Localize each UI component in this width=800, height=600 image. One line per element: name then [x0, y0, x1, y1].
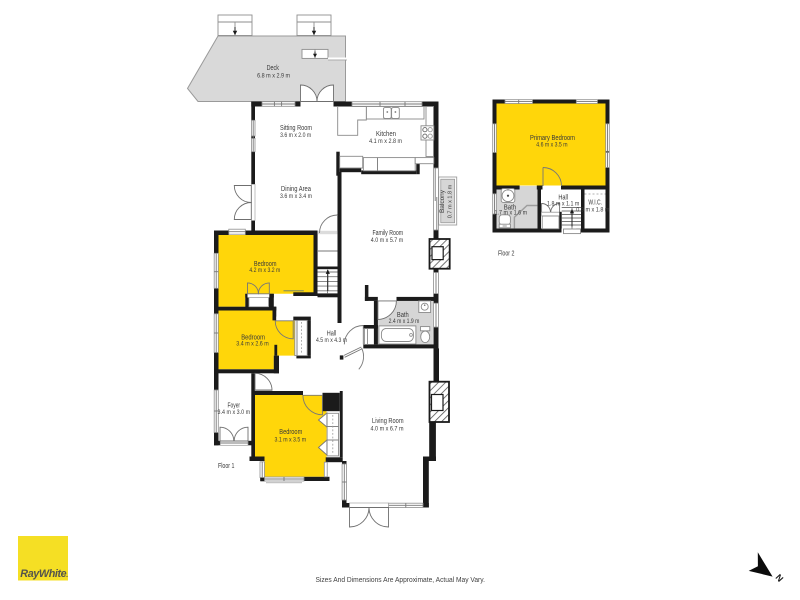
- svg-text:6.8 m x 2.9 m: 6.8 m x 2.9 m: [257, 72, 290, 79]
- svg-text:4.1 m x 2.8 m: 4.1 m x 2.8 m: [369, 138, 402, 145]
- svg-text:4.6 m x 3.5 m: 4.6 m x 3.5 m: [536, 141, 567, 148]
- svg-text:3.6 m x 3.4 m: 3.6 m x 3.4 m: [280, 193, 312, 200]
- svg-text:0.9 m x 1.8 m: 0.9 m x 1.8 m: [576, 206, 609, 213]
- svg-text:RayWhite.: RayWhite.: [20, 568, 68, 580]
- svg-text:4.0 m x 5.7 m: 4.0 m x 5.7 m: [371, 237, 403, 244]
- svg-text:Balcony: Balcony: [439, 189, 446, 213]
- svg-text:4.2 m x 3.2 m: 4.2 m x 3.2 m: [249, 267, 280, 274]
- svg-text:1.7 m x 1.6 m: 1.7 m x 1.6 m: [495, 210, 528, 217]
- svg-text:Floor 2: Floor 2: [498, 249, 515, 258]
- svg-text:Kitchen: Kitchen: [376, 131, 396, 138]
- svg-text:Sitting Room: Sitting Room: [280, 125, 312, 132]
- svg-text:3.4 m x 3.0 m: 3.4 m x 3.0 m: [218, 409, 251, 416]
- svg-text:0.7 m x 1.8 m: 0.7 m x 1.8 m: [447, 185, 453, 219]
- svg-text:Bedroom: Bedroom: [279, 429, 302, 436]
- svg-text:3.4 m x 2.6 m: 3.4 m x 2.6 m: [236, 341, 269, 348]
- svg-text:2.4 m x 1.9 m: 2.4 m x 1.9 m: [389, 318, 420, 325]
- svg-text:4.0 m x 6.7 m: 4.0 m x 6.7 m: [371, 425, 404, 432]
- svg-text:1.8 m x 1.1 m: 1.8 m x 1.1 m: [547, 201, 579, 208]
- svg-text:Sizes And Dimensions Are Appro: Sizes And Dimensions Are Approximate, Ac…: [315, 575, 485, 584]
- svg-text:Dining Area: Dining Area: [281, 186, 311, 193]
- svg-text:3.1 m x 3.5 m: 3.1 m x 3.5 m: [275, 436, 307, 443]
- svg-text:Floor 1: Floor 1: [218, 461, 235, 470]
- svg-text:Living Room: Living Room: [372, 418, 404, 425]
- svg-text:4.5 m x 4.3 m: 4.5 m x 4.3 m: [316, 337, 347, 344]
- svg-text:3.6 m x 2.0 m: 3.6 m x 2.0 m: [280, 132, 311, 139]
- svg-text:Deck: Deck: [267, 65, 280, 72]
